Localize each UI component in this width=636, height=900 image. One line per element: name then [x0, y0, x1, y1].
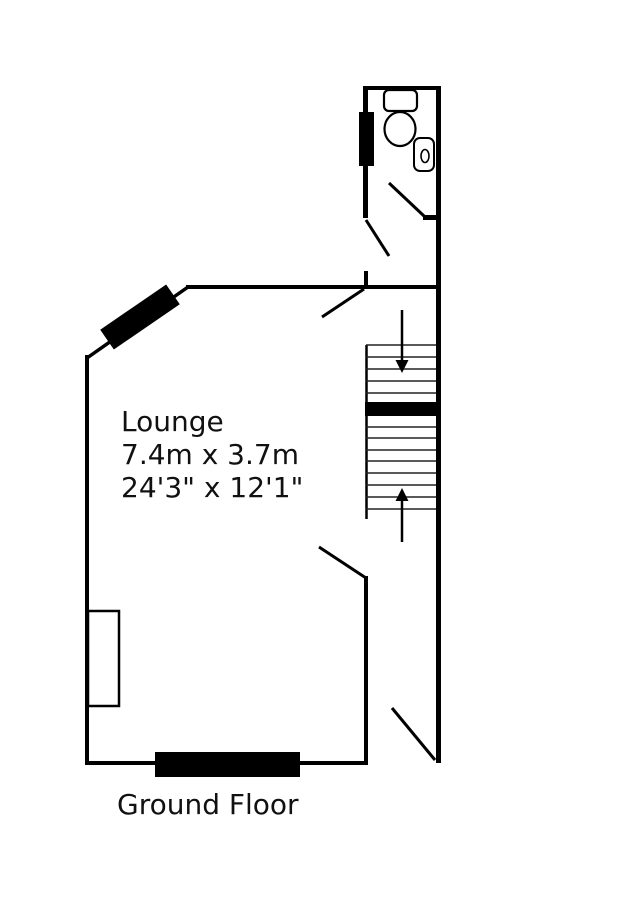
lounge-top-wall: [186, 285, 441, 289]
stairs-down-arrow-icon: [396, 310, 409, 373]
staircase: [365, 310, 436, 542]
stair-mid-landing-band: [365, 402, 436, 416]
floor-plan-drawing: [0, 0, 636, 900]
side-entrance-door-swing: [366, 220, 389, 256]
room-size-metric-label: 7.4m x 3.7m: [121, 438, 303, 471]
lounge-hall-door-swing: [319, 547, 366, 578]
front-door-swing: [392, 708, 435, 760]
bathroom-door-wall-stub: [423, 215, 441, 220]
right-exterior-wall: [436, 86, 441, 763]
lounge-diagonal-window-bar: [100, 284, 180, 349]
stairs-up-arrow-icon: [396, 488, 409, 542]
bathroom-window-bar: [359, 112, 374, 166]
lounge-right-wall-lower: [364, 576, 368, 765]
floor-name-label: Ground Floor: [117, 788, 299, 821]
room-name-label: Lounge: [121, 405, 303, 438]
toilet-bowl: [385, 112, 416, 146]
floorplan-canvas: Lounge 7.4m x 3.7m 24'3" x 12'1" Ground …: [0, 0, 636, 900]
lounge-top-door-swing: [322, 289, 364, 317]
sink-drain: [421, 150, 429, 163]
room-size-imperial-label: 24'3" x 12'1": [121, 471, 303, 504]
lounge-label-block: Lounge 7.4m x 3.7m 24'3" x 12'1": [121, 405, 303, 504]
lounge-bottom-window-bar: [155, 752, 300, 777]
chimney-breast: [88, 611, 119, 706]
toilet-icon: [384, 86, 417, 146]
sink-icon: [414, 138, 434, 171]
door-swings: [319, 183, 435, 760]
toilet-tank: [384, 90, 417, 111]
bathroom-door-swing: [389, 183, 424, 216]
